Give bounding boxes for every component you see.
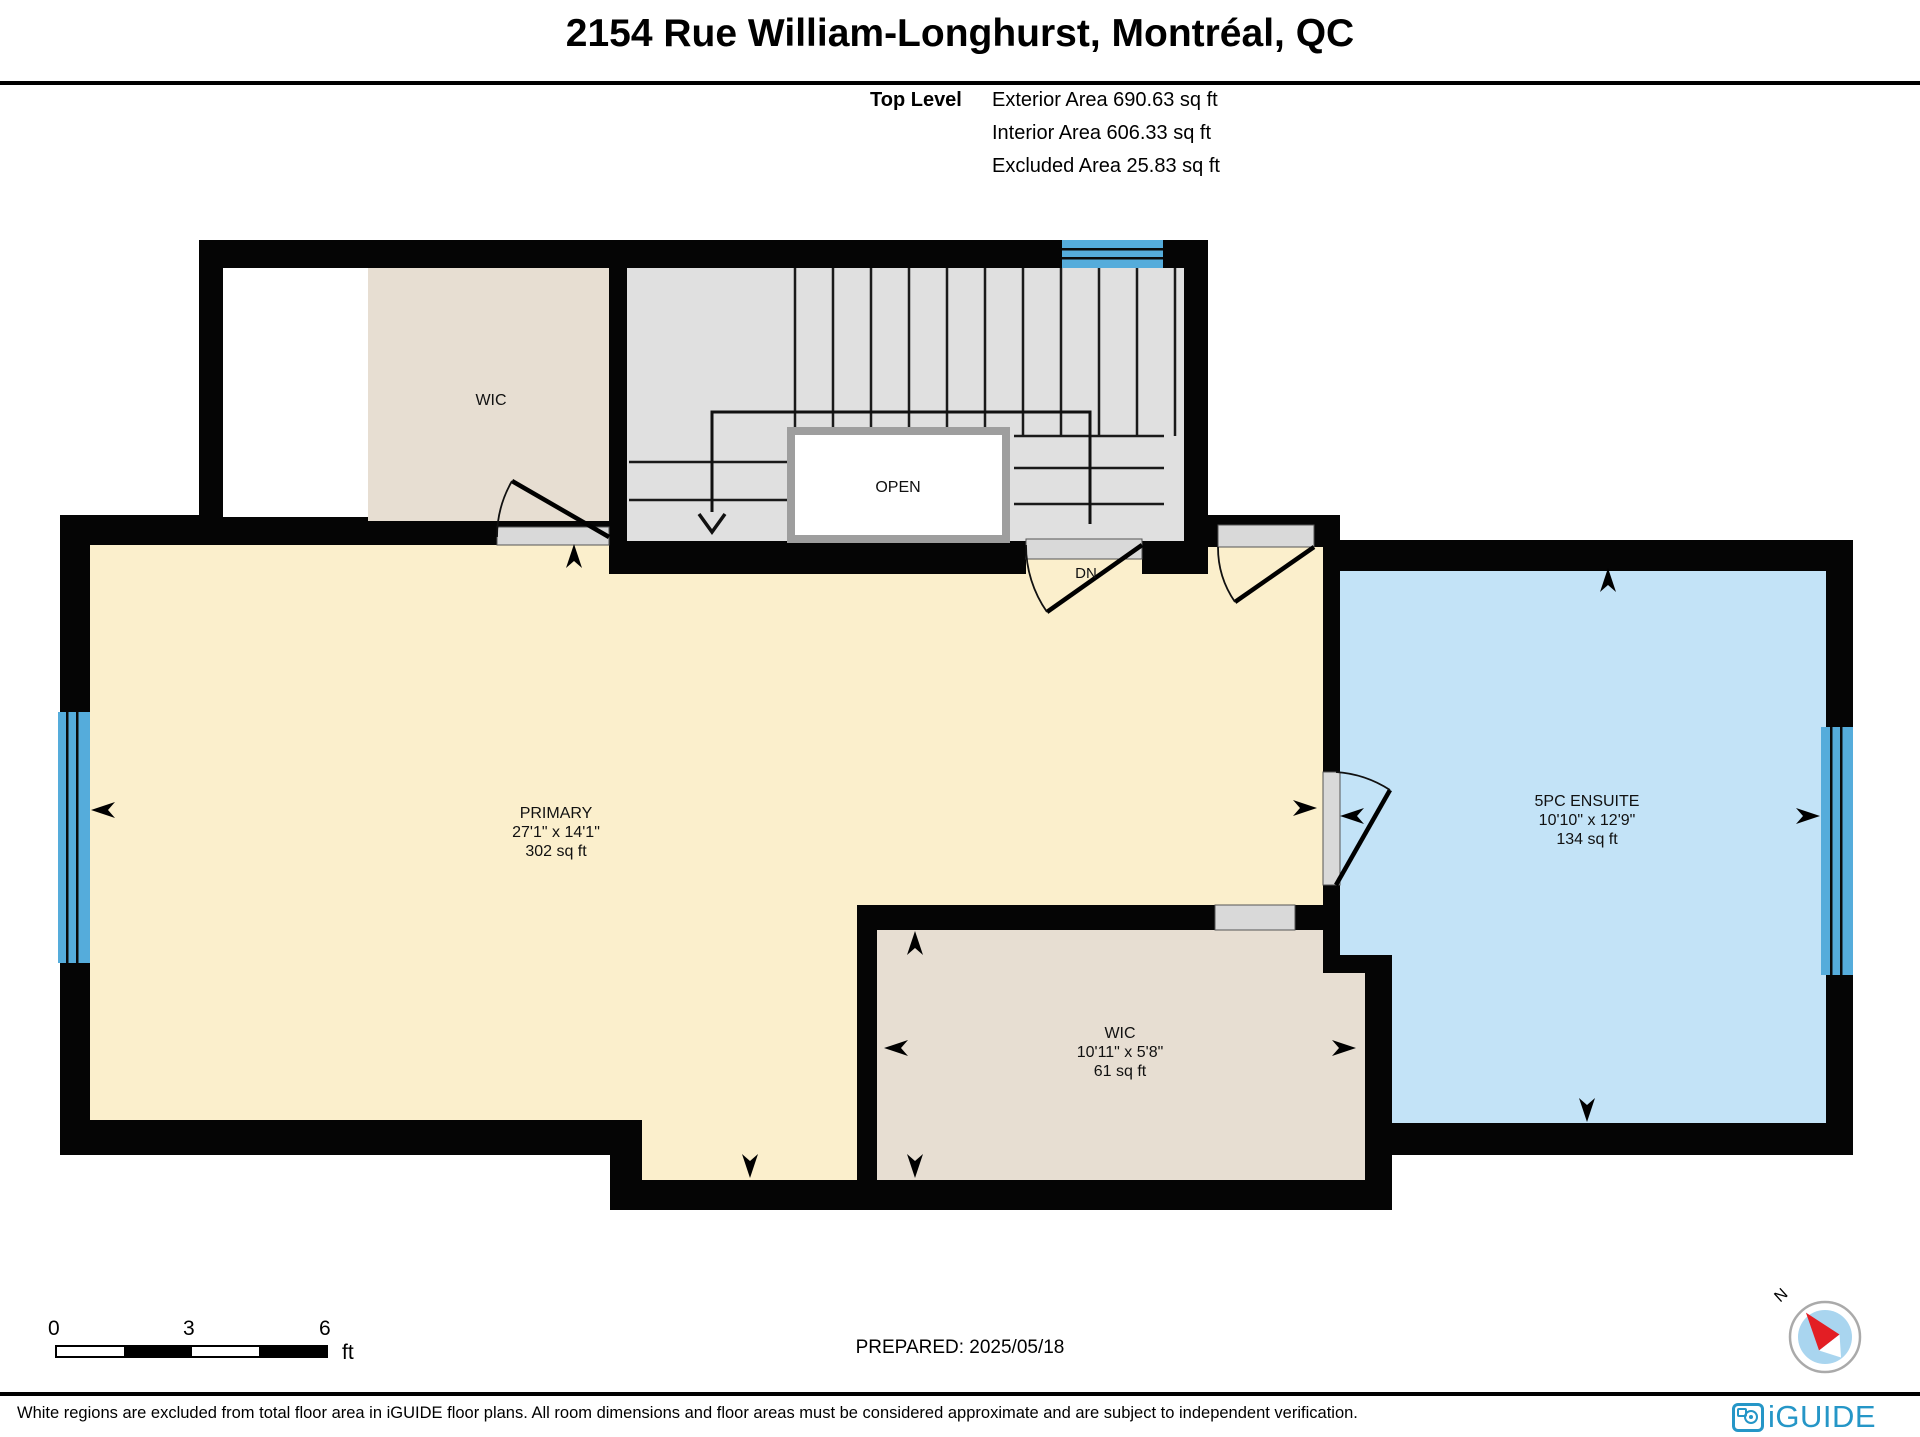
wic-upper-label: WIC: [475, 392, 506, 409]
primary-dims: 27'1" x 14'1": [512, 824, 600, 841]
wic-lower-label: WIC: [1104, 1025, 1135, 1042]
window-left: [58, 712, 90, 963]
iguide-logo: iGUIDE: [1732, 1399, 1876, 1435]
footer-divider: [0, 1392, 1920, 1396]
wic-lower-dims: 10'11" x 5'8": [1077, 1044, 1164, 1061]
dn-label: DN: [1075, 565, 1097, 582]
compass-icon: [1788, 1300, 1862, 1374]
ensuite-floor: [1392, 955, 1826, 1123]
prepared-date: PREPARED: 2025/05/18: [0, 1337, 1920, 1359]
open-label: OPEN: [875, 479, 920, 496]
camera-icon: [1732, 1403, 1764, 1432]
hall-door-threshold: [1218, 525, 1314, 547]
wic-lower-area: 61 sq ft: [1094, 1063, 1147, 1080]
primary-floor: [609, 574, 1208, 905]
ensuite-floor: [1340, 571, 1826, 955]
primary-area: 302 sq ft: [525, 843, 587, 860]
window-top: [1062, 240, 1163, 268]
primary-label: PRIMARY: [520, 805, 593, 822]
primary-floor: [1208, 547, 1323, 905]
window-right: [1821, 727, 1853, 975]
footer-disclaimer: White regions are excluded from total fl…: [17, 1404, 1358, 1423]
ensuite-door-threshold: [1323, 772, 1340, 885]
wic-lower-passage-threshold: [1215, 905, 1295, 930]
ensuite-label: 5PC ENSUITE: [1535, 793, 1640, 810]
brand-name: iGUIDE: [1768, 1399, 1876, 1435]
primary-floor: [609, 905, 857, 1120]
excluded-region: [223, 268, 368, 517]
ensuite-dims: 10'10" x 12'9": [1539, 812, 1636, 829]
floors: [90, 268, 1826, 1180]
ensuite-area: 134 sq ft: [1556, 831, 1618, 848]
floor-plan: WIC OPEN DN PRIMARY 27'1" x 14'1" 302 sq…: [0, 0, 1920, 1437]
